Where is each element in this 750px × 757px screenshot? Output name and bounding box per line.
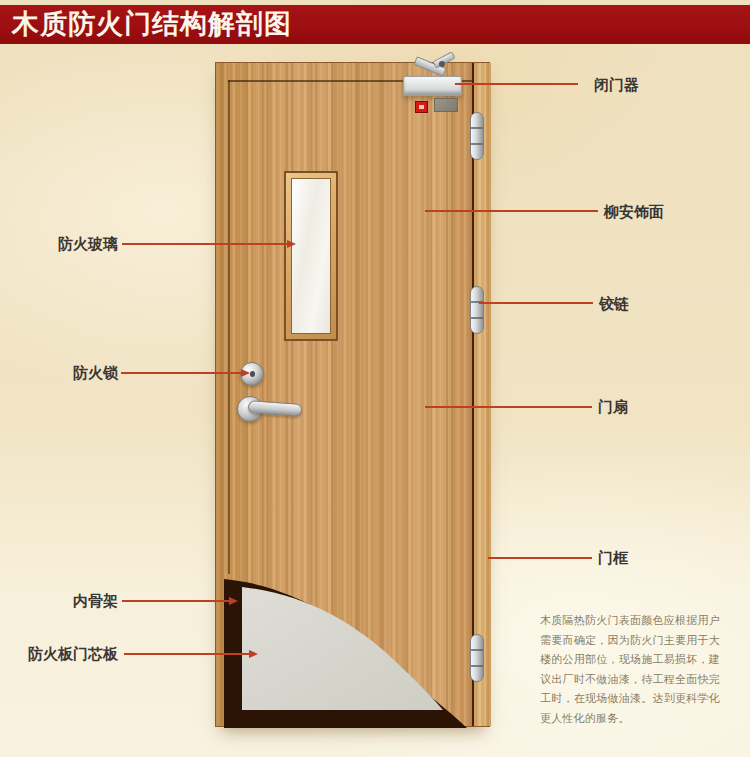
pointer-line-core-board	[124, 653, 250, 655]
label-veneer: 柳安饰面	[604, 204, 664, 220]
fire-glass-window	[284, 171, 338, 341]
label-inner-skeleton: 内骨架	[0, 593, 118, 609]
description-text: 木质隔热防火门表面颜色应根据用户需要而确定，因为防火门主要用于大楼的公用部位，现…	[540, 611, 720, 728]
pointer-line-fire-lock	[121, 372, 242, 374]
label-door-closer: 闭门器	[594, 77, 639, 93]
door-leaf-groove-left	[228, 80, 230, 574]
arrow-core-board	[249, 650, 258, 658]
pointer-line-door-closer	[455, 83, 578, 85]
fire-glass-pane	[291, 178, 331, 334]
alarm-indicator	[415, 101, 428, 113]
title-banner: 木质防火门结构解剖图	[0, 5, 750, 44]
pointer-line-veneer	[425, 210, 598, 212]
hinge-middle	[470, 286, 484, 334]
door-closer-body	[403, 76, 462, 96]
arrow-fire-lock	[241, 369, 250, 377]
hinge-bottom	[470, 634, 484, 682]
label-door-leaf: 门扇	[598, 399, 628, 415]
label-fire-glass: 防火玻璃	[0, 236, 118, 252]
pointer-line-fire-glass	[122, 243, 288, 245]
pointer-line-door-frame	[488, 557, 592, 559]
pointer-line-hinge	[479, 302, 593, 304]
hinge-top	[470, 112, 484, 160]
pointer-line-door-leaf	[425, 406, 592, 408]
name-plate	[434, 98, 458, 112]
pointer-line-inner-skeleton	[122, 600, 230, 602]
door-closer-pivot	[439, 61, 445, 67]
label-hinge: 铰链	[599, 296, 629, 312]
arrow-fire-glass	[287, 240, 296, 248]
core-board-shape	[242, 587, 443, 710]
page-title: 木质防火门结构解剖图	[12, 5, 292, 44]
label-core-board: 防火板门芯板	[0, 646, 118, 662]
arrow-inner-skeleton	[229, 597, 238, 605]
label-fire-lock: 防火锁	[0, 365, 118, 381]
door-frame-right	[472, 63, 491, 726]
label-door-frame: 门框	[598, 550, 628, 566]
